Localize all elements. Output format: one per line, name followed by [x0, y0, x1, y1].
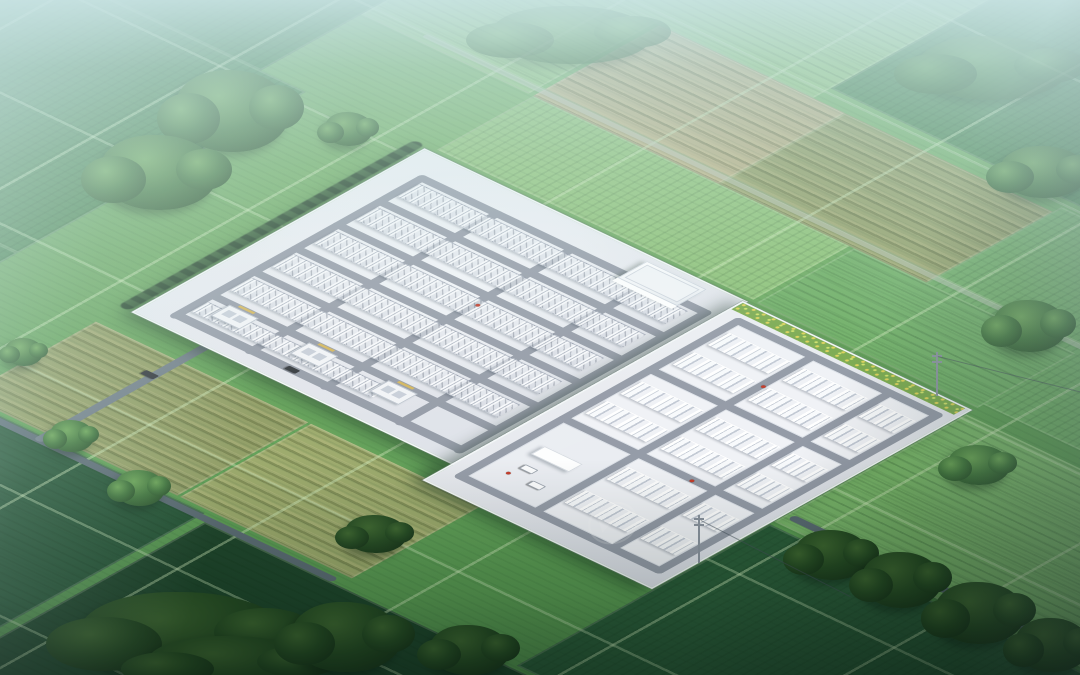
tree-cluster — [1015, 618, 1080, 672]
tree-cluster — [325, 112, 373, 146]
auxiliary-building — [531, 446, 583, 472]
tree-cluster — [918, 36, 1068, 100]
tree-cluster — [50, 420, 94, 452]
utility-pole — [936, 352, 938, 396]
tree-cluster — [115, 470, 165, 506]
tree-cluster — [175, 70, 290, 152]
truck — [519, 464, 539, 474]
truck — [527, 481, 547, 491]
tree-cluster — [345, 515, 407, 553]
tree-cluster — [5, 338, 43, 366]
tree-cluster — [993, 300, 1067, 352]
tree-cluster — [1000, 146, 1080, 198]
aerial-render-scene — [0, 0, 1080, 675]
tree-cluster — [100, 135, 218, 210]
tree-cluster — [292, 602, 402, 672]
tree-cluster — [492, 6, 652, 64]
utility-pole — [698, 515, 700, 563]
tree-cluster — [862, 552, 942, 608]
tree-cluster — [948, 445, 1010, 485]
tree-cluster — [430, 625, 510, 675]
